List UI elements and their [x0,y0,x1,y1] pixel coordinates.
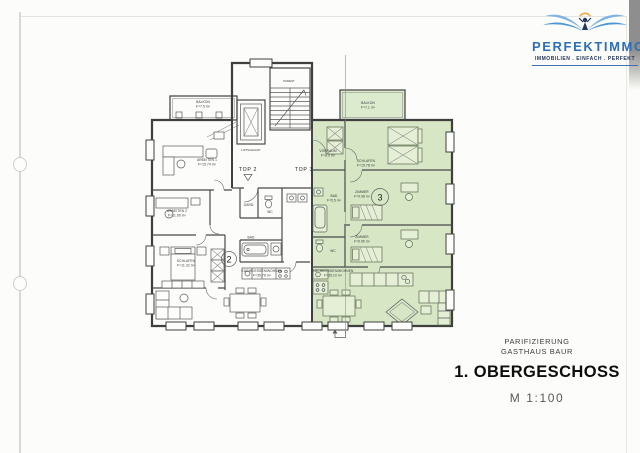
room-area: F=8.9 m² [321,154,335,158]
room-label: KÜCHE/ESSEN/WOHNEN [313,269,355,273]
wardrobe [211,249,224,282]
sofa [156,291,192,319]
bed [351,247,382,262]
room-label: ZIMMER [355,235,369,239]
room-area: F=35.76 m² [253,274,271,278]
room-label: SCHLAFEN [357,159,376,163]
top2-label: TOP 2 [239,167,257,173]
room-area: F=7.1 m² [361,106,375,110]
podest-label: PODEST [283,79,295,83]
room-label: GARD. [244,203,255,207]
bathtub [242,243,281,256]
room-area: F=5.5 m² [327,199,341,203]
room-area: F=7.5 m² [196,105,210,109]
room-label: WC [267,210,273,214]
room-label: BAD [330,194,338,198]
building-title: GASTHAUS BAUR [452,347,622,357]
lift-shaft: LIFTSCHACHT [237,100,265,152]
washbasin [287,194,307,202]
room-area: F=11.32 m² [177,264,195,268]
dining-table [224,288,266,318]
room-area: F=9.96 m² [354,240,370,244]
top3-label: TOP 3 [295,167,313,173]
scale-label: M 1:100 [452,391,622,405]
room-label: ARBEITEN 2 [167,209,187,213]
room-area: F=15.74 m² [198,163,216,167]
room-area: F=9.98 m² [354,195,370,199]
room-label: BAD [247,236,255,240]
room-label: BALKON [361,101,375,105]
room-label: WC [330,249,336,253]
room-label: ZIMMER [355,190,369,194]
bed [160,247,206,288]
floor-title: 1. OBERGESCHOSS [452,363,622,382]
toilet [265,196,272,208]
room-area: F=35.10 m² [324,274,342,278]
project-title: PARIFIZIERUNG [452,337,622,347]
top3-number: 3 [377,193,382,203]
desk [163,132,224,175]
room-area: F=15.78 m² [357,164,375,168]
bed [351,205,382,220]
room-area: F=11.96 m² [168,214,186,218]
toilet [316,240,323,252]
room-label: KÜCHE/ESSEN/WOHNEN [242,269,284,273]
room-label: BALKON [196,100,210,104]
lift-label: LIFTSCHACHT [241,148,261,152]
top2-number: 2 [226,255,231,265]
room-label: ARBEITEN 1 [197,158,217,162]
room-label: VORRAUM [319,149,337,153]
room-label: SCHLAFEN [177,259,196,263]
staircase: PODEST [270,68,310,130]
title-block: PARIFIZIERUNG GASTHAUS BAUR 1. OBERGESCH… [452,337,622,405]
